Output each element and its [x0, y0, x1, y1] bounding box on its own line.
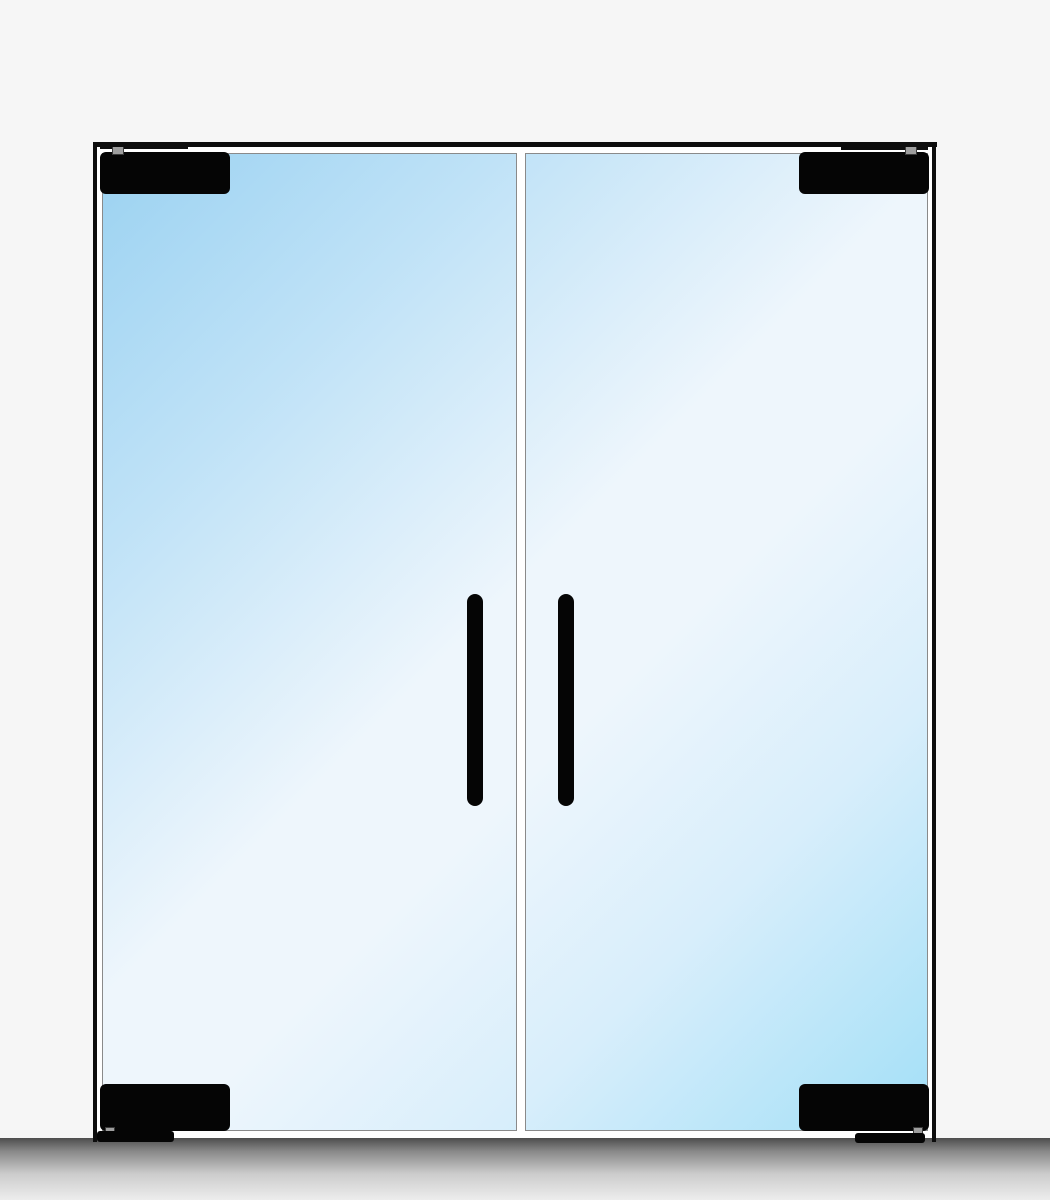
top-right-patch-fitting [799, 152, 929, 194]
top-left-patch-fitting [100, 152, 230, 194]
right-door-handle [558, 594, 574, 806]
floor [0, 1138, 1050, 1200]
left-door-handle [467, 594, 483, 806]
right-door-panel [525, 153, 928, 1131]
frame-header [93, 142, 937, 147]
top-right-pivot-pin [905, 146, 917, 155]
bottom-right-patch-fitting [799, 1084, 929, 1131]
frame-left-jamb [93, 142, 97, 1142]
left-door-panel [102, 153, 517, 1131]
bottom-left-patch-fitting [100, 1084, 230, 1131]
top-left-pivot-pin [112, 146, 124, 155]
frame-right-jamb [932, 142, 936, 1142]
bottom-left-floor-plate [97, 1131, 174, 1142]
bottom-right-floor-plate [855, 1133, 925, 1143]
center-gap [517, 150, 525, 1134]
